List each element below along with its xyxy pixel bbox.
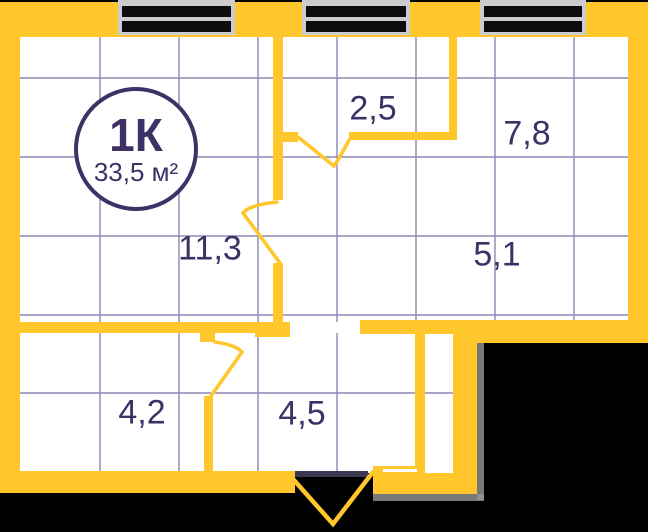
door-bath-swing [211,342,242,396]
door-room-swing [243,202,280,263]
room-label-11-3: 11,3 [178,230,242,269]
door-balcony-swing [293,472,373,524]
door-swings [0,0,648,532]
door-hall-swing [298,137,349,166]
apartment-type-badge: 1К 33,5 м² [74,87,198,211]
floor-plan: 1К 33,5 м² 2,5 7,8 11,3 5,1 4,2 4,5 [0,0,648,532]
room-label-7-8: 7,8 [503,115,550,154]
room-label-4-2: 4,2 [118,394,165,433]
apartment-type-label: 1К [109,112,163,158]
room-label-5-1: 5,1 [473,236,520,275]
room-label-2-5: 2,5 [349,90,396,129]
apartment-total-area: 33,5 м² [94,158,178,187]
room-label-4-5: 4,5 [278,395,325,434]
